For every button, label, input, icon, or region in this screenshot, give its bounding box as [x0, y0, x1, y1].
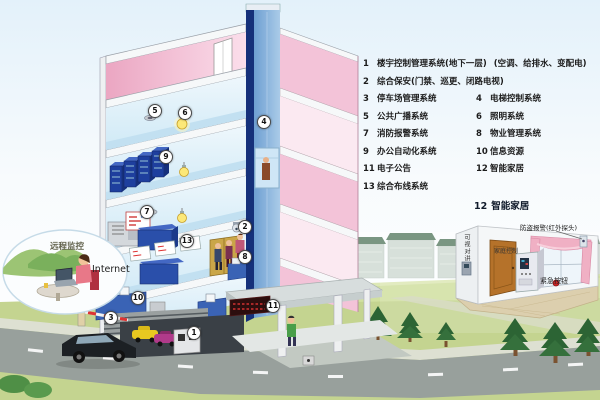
legend-item-1: 1楼宇控制管理系统(地下一层)(空调、给排水、变配电) — [363, 56, 587, 74]
emergency-button-label: 紧急按钮 — [540, 276, 568, 286]
legend-item-2: 2综合保安(门禁、巡更、闭路电视) — [363, 74, 504, 92]
legend-note: (空调、给排水、变配电) — [494, 59, 587, 69]
legend-label: 照明系统 — [490, 112, 524, 122]
legend-num: 6 — [476, 109, 488, 127]
marker-fire-7: 7 — [140, 205, 154, 219]
internet-label: Internet — [92, 264, 130, 275]
legend-label: 信息资源 — [490, 147, 524, 157]
legend-item-7: 7消防报警系统 — [363, 126, 476, 144]
legend-num: 8 — [476, 126, 488, 144]
smart-home-title-num: 12 — [474, 201, 487, 212]
legend-num: 5 — [363, 109, 375, 127]
legend-num: 4 — [476, 91, 488, 109]
elevator-car — [255, 148, 279, 188]
marker-bulletin-11: 11 — [266, 299, 280, 313]
marker-cabling-13: 13 — [180, 234, 194, 248]
legend-item-8: 8物业管理系统 — [476, 126, 541, 144]
marker-office-9: 9 — [159, 150, 173, 164]
legend-label: 停车场管理系统 — [377, 94, 437, 104]
legend-label: 电子公告 — [377, 164, 411, 174]
legend-num: 3 — [363, 91, 375, 109]
legend-row: 3停车场管理系统4电梯控制系统 — [363, 91, 600, 109]
legend-num: 12 — [476, 161, 488, 179]
smart-building-diagram: 1楼宇控制管理系统(地下一层)(空调、给排水、变配电) 2综合保安(门禁、巡更、… — [0, 0, 600, 400]
legend-item-6: 6照明系统 — [476, 109, 524, 127]
legend-label: 公共广播系统 — [377, 112, 428, 122]
legend-num: 1 — [363, 56, 375, 74]
legend-row: 7消防报警系统8物业管理系统 — [363, 126, 600, 144]
home-controller-label: 家庭控制 — [494, 246, 518, 255]
marker-security-2: 2 — [238, 220, 252, 234]
legend-item-9: 9办公自动化系统 — [363, 144, 476, 162]
legend-num: 9 — [363, 144, 375, 162]
legend-num: 2 — [363, 74, 375, 92]
remote-monitoring-label: 远程监控 — [50, 240, 84, 252]
legend-item-11: 11电子公告 — [363, 161, 476, 179]
legend-label: 楼宇控制管理系统(地下一层) — [377, 59, 487, 69]
legend-label: 电梯控制系统 — [490, 94, 541, 104]
marker-garage-1: 1 — [187, 326, 201, 340]
legend-num: 10 — [476, 144, 488, 162]
legend-row: 2综合保安(门禁、巡更、闭路电视) — [363, 74, 600, 92]
video-intercom-device — [462, 262, 471, 275]
marker-property-8: 8 — [238, 250, 252, 264]
cabinet — [140, 258, 184, 284]
video-intercom-label: 可视对讲 — [462, 234, 471, 262]
legend-item-5: 5公共广播系统 — [363, 109, 476, 127]
legend-num: 7 — [363, 126, 375, 144]
legend-item-12: 12智能家居 — [476, 161, 524, 179]
legend-row: 13综合布线系统 — [363, 179, 600, 197]
canopy-column — [334, 295, 342, 352]
legend-row: 9办公自动化系统10信息资源 — [363, 144, 600, 162]
legend-item-10: 10信息资源 — [476, 144, 524, 162]
legend-label: 智能家居 — [490, 164, 524, 174]
legend-label: 消防报警系统 — [377, 129, 428, 139]
smart-home-title-text: 智能家居 — [491, 201, 529, 212]
marker-lighting-6: 6 — [178, 106, 192, 120]
elevator-passenger — [263, 157, 269, 163]
smart-home-title: 12智能家居 — [474, 198, 529, 212]
legend-num: 11 — [363, 161, 375, 179]
marker-elevator-4: 4 — [257, 115, 271, 129]
outdoor-camera-box — [303, 356, 314, 365]
bush — [24, 382, 52, 398]
burglar-alarm-label: 防盗报警(红外探头) — [520, 222, 577, 232]
legend-row: 5公共广播系统6照明系统 — [363, 109, 600, 127]
marker-broadcast-5: 5 — [148, 104, 162, 118]
legend-row: 11电子公告12智能家居 — [363, 161, 600, 179]
legend-row: 1楼宇控制管理系统(地下一层)(空调、给排水、变配电) — [363, 56, 600, 74]
legend-item-3: 3停车场管理系统 — [363, 91, 476, 109]
right-facade — [280, 28, 358, 312]
legend-item-4: 4电梯控制系统 — [476, 91, 541, 109]
smart-home-room — [456, 226, 598, 318]
system-legend: 1楼宇控制管理系统(地下一层)(空调、给排水、变配电) 2综合保安(门禁、巡更、… — [363, 56, 600, 196]
legend-num: 13 — [363, 179, 375, 197]
cup — [44, 283, 48, 288]
legend-item-13: 13综合布线系统 — [363, 179, 428, 197]
elevator-shaft — [246, 4, 280, 322]
marker-parking-3: 3 — [104, 311, 118, 325]
marker-info-10: 10 — [131, 291, 145, 305]
legend-label: 办公自动化系统 — [377, 147, 437, 157]
legend-label: 物业管理系统 — [490, 129, 541, 139]
legend-label: 综合保安(门禁、巡更、闭路电视) — [377, 77, 504, 87]
legend-label: 综合布线系统 — [377, 182, 428, 192]
